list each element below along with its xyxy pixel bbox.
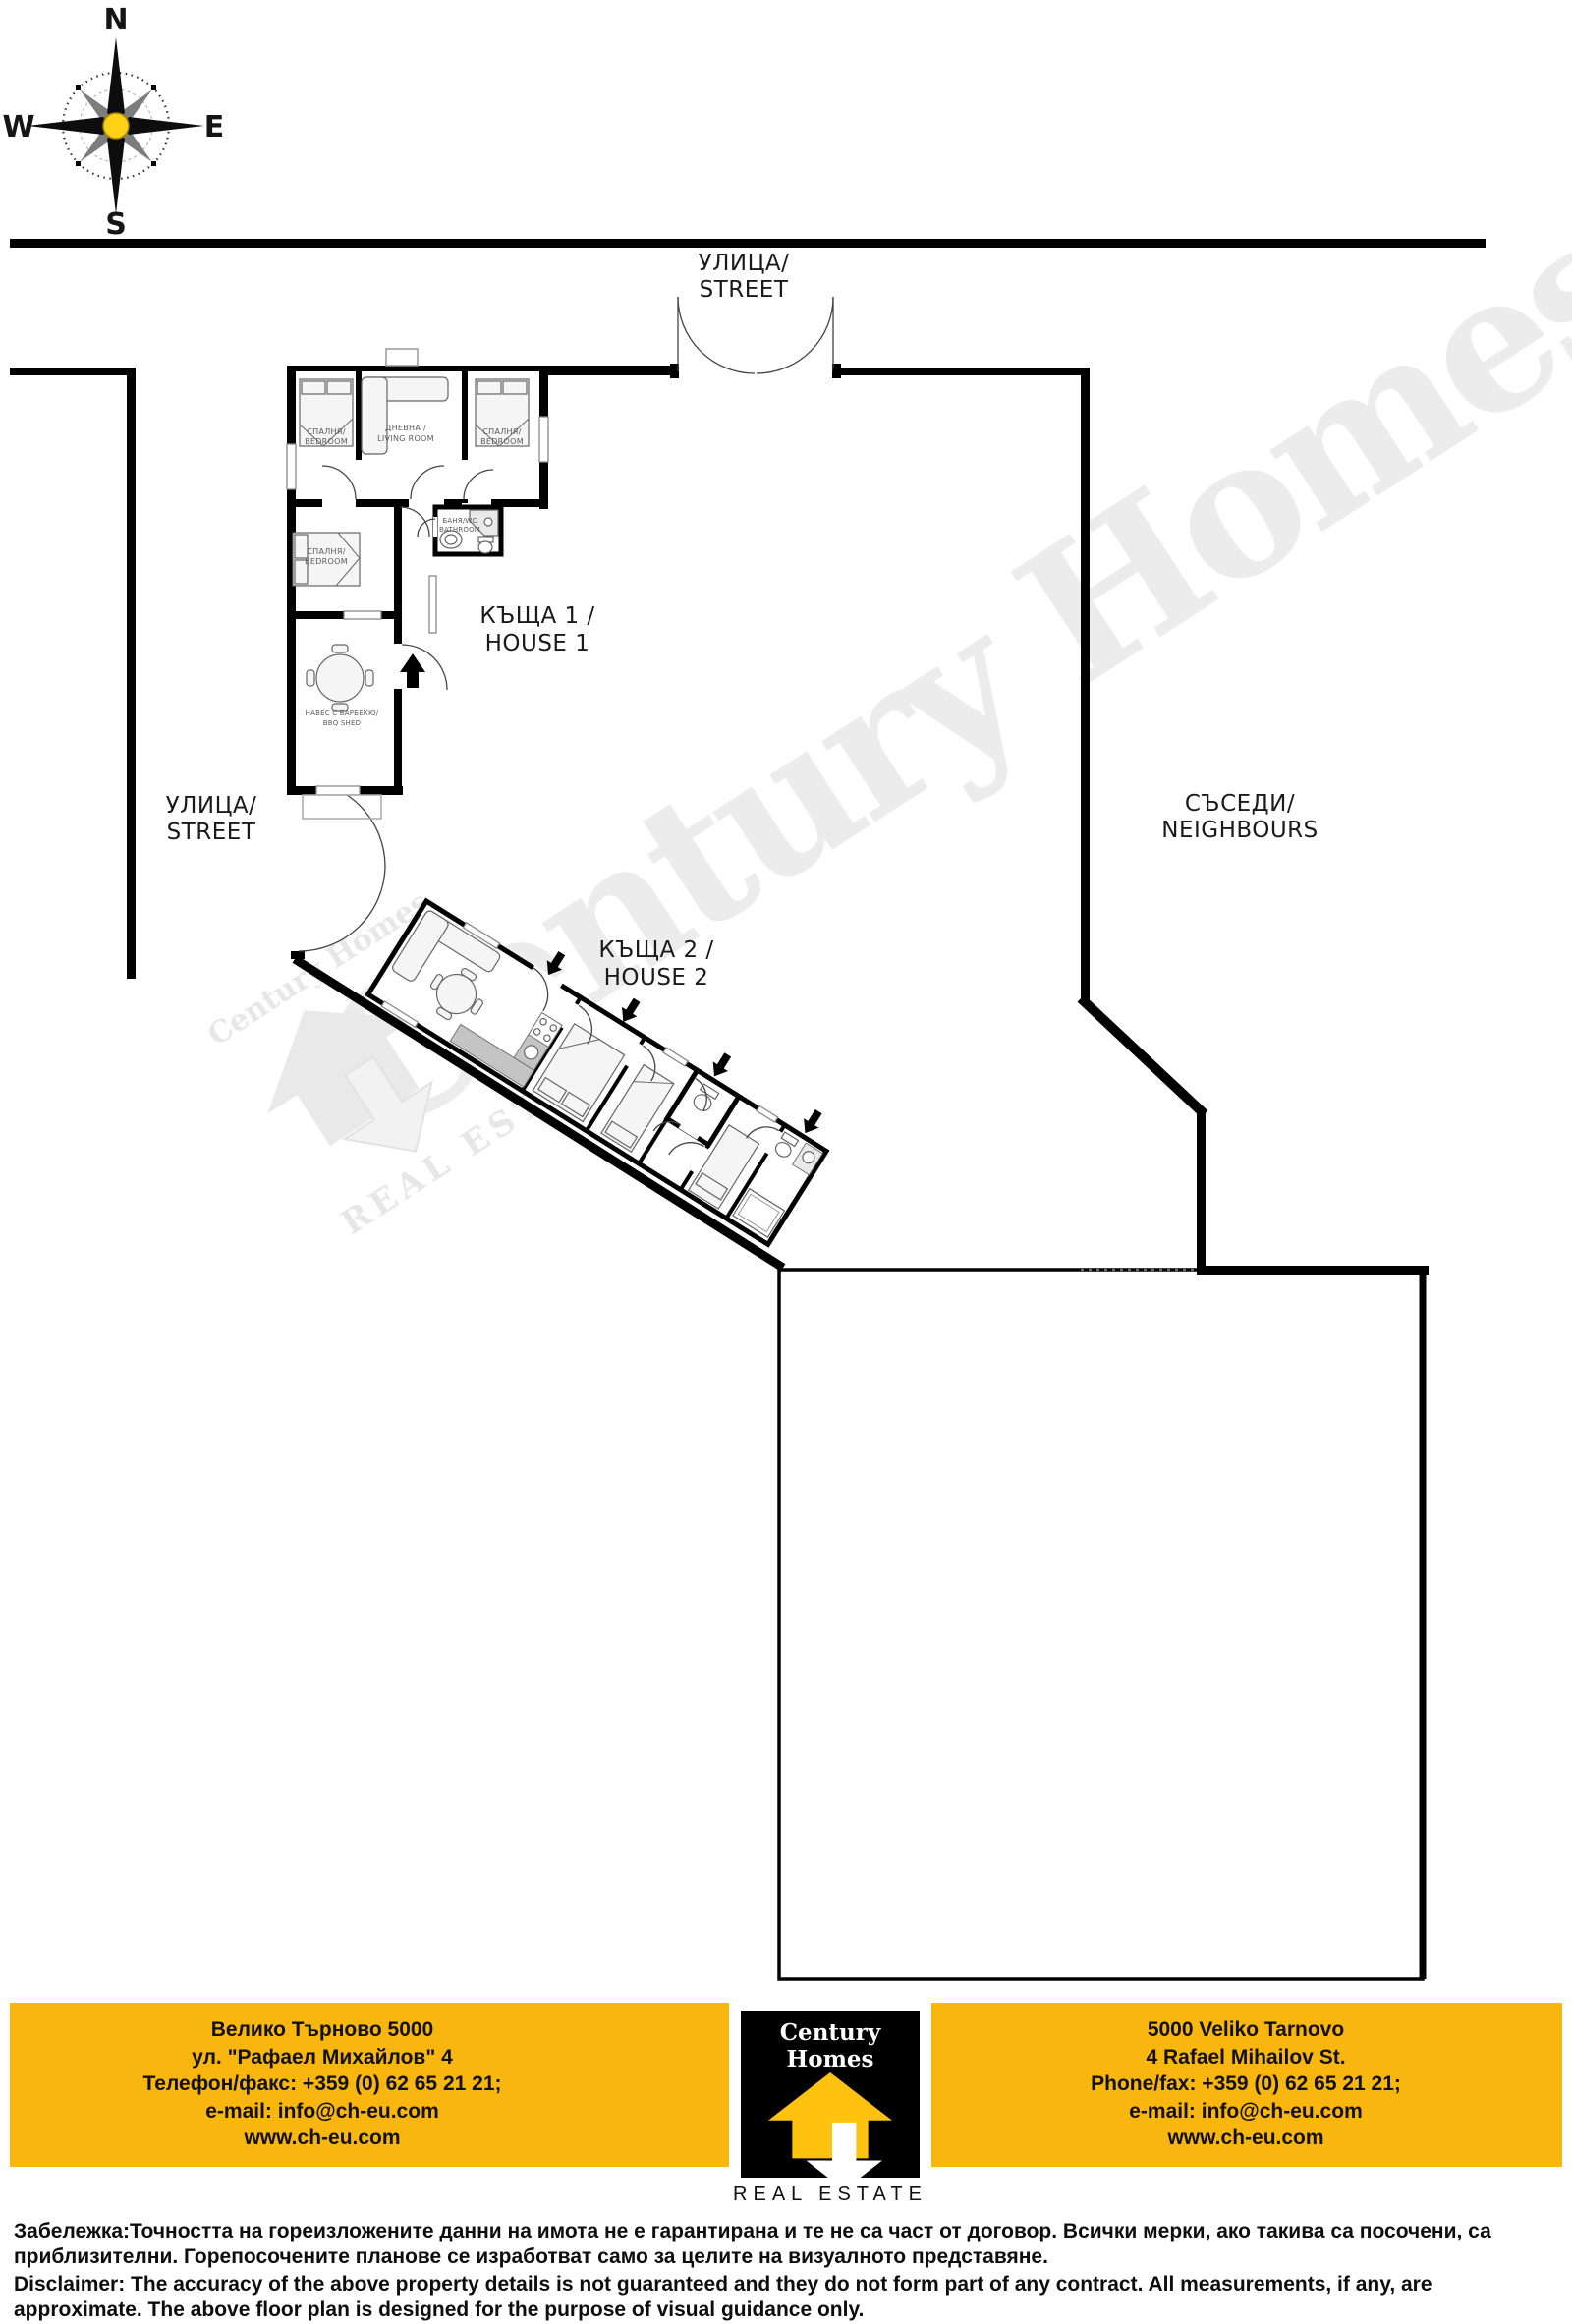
room-label: СПАЛНЯ/	[307, 547, 345, 556]
logo-black-square: Century Homes	[741, 2011, 920, 2178]
logo-brand-text: Century Homes	[741, 2011, 920, 2072]
street-left-line	[127, 368, 136, 979]
room-label: BATHROOM	[439, 526, 480, 534]
compass-n: N	[103, 3, 128, 37]
site-plan-drawing: Century Homes Century Homes REAL ESTATE	[0, 0, 1572, 2324]
house1-label: КЪЩА 1 /	[479, 603, 594, 629]
street-left-label: STREET	[167, 820, 256, 845]
room-label: LIVING ROOM	[377, 434, 434, 443]
street-top-label: STREET	[700, 277, 789, 303]
compass-center	[103, 113, 129, 139]
house2-label: КЪЩА 2 /	[598, 937, 713, 963]
logo-house-arrows-icon	[757, 2072, 904, 2192]
logo-tagline-text: REAL ESTATE	[729, 2183, 931, 2206]
footer-street-en: 4 Rafael Mihailov St.	[941, 2044, 1550, 2071]
watermark: Century Homes Century Homes REAL ESTATE	[201, 171, 1572, 1248]
house2-label: HOUSE 2	[604, 965, 709, 991]
floor-plan-page: Century Homes Century Homes REAL ESTATE	[0, 0, 1572, 2324]
disclaimer-english: Disclaimer: The accuracy of the above pr…	[14, 2272, 1560, 2323]
footer-email-bg[interactable]: e-mail: info@ch-eu.com	[18, 2098, 627, 2126]
room-label: СПАЛНЯ/	[482, 427, 521, 436]
room-label: BEDROOM	[480, 437, 524, 446]
lower-parcel-outline	[779, 1270, 1423, 1979]
round-table	[316, 654, 364, 702]
disclaimer-bulgarian: Забележка:Точността на гореизложените да…	[14, 2219, 1560, 2270]
room-label: BEDROOM	[305, 437, 348, 446]
street-top-line	[10, 239, 1486, 248]
neighbours-label: NEIGHBOURS	[1161, 818, 1319, 843]
room-label: НАВЕС С БАРБЕКЮ/	[306, 709, 379, 717]
footer-city-bg: Велико Търново 5000	[18, 2016, 627, 2044]
porch	[386, 349, 418, 366]
top-gate	[678, 297, 833, 373]
footer-address-bg: Велико Търново 5000 ул. "Рафаел Михайлов…	[18, 2016, 627, 2152]
room-label: БАНЯ/WC	[442, 517, 477, 525]
room-label: СПАЛНЯ/	[307, 427, 345, 436]
footer-phone-bg: Телефон/факс: +359 (0) 62 65 21 21;	[18, 2070, 627, 2098]
footer-phone-en: Phone/fax: +359 (0) 62 65 21 21;	[941, 2070, 1550, 2098]
room-label: BBQ SHED	[323, 719, 361, 727]
compass-rose: N S W E	[2, 3, 224, 242]
footer-city-en: 5000 Veliko Tarnovo	[941, 2016, 1550, 2044]
house1-plan: СПАЛНЯ/ BEDROOM ДНЕВНА / LIVING ROOM СПА…	[287, 349, 548, 819]
room-label: BEDROOM	[305, 557, 348, 566]
house1-label: HOUSE 1	[485, 631, 590, 656]
footer-street-bg: ул. "Рафаел Михайлов" 4	[18, 2044, 627, 2071]
footer-email-en[interactable]: e-mail: info@ch-eu.com	[941, 2098, 1550, 2126]
entrance-arrow	[400, 653, 425, 688]
footer-address-en: 5000 Veliko Tarnovo 4 Rafael Mihailov St…	[941, 2016, 1550, 2152]
compass-w: W	[2, 110, 34, 144]
room-label: ДНЕВНА /	[385, 424, 426, 432]
footer-website-en[interactable]: www.ch-eu.com	[941, 2125, 1550, 2152]
compass-s: S	[105, 207, 127, 242]
neighbours-label: СЪСЕДИ/	[1185, 791, 1295, 817]
street-left-label: УЛИЦА/	[166, 793, 257, 819]
century-homes-logo: Century Homes REAL ESTATE	[729, 1995, 931, 2216]
street-top-label: УЛИЦА/	[699, 251, 790, 276]
terrace	[303, 795, 381, 819]
compass-e: E	[204, 110, 225, 144]
footer-website-bg[interactable]: www.ch-eu.com	[18, 2125, 627, 2152]
